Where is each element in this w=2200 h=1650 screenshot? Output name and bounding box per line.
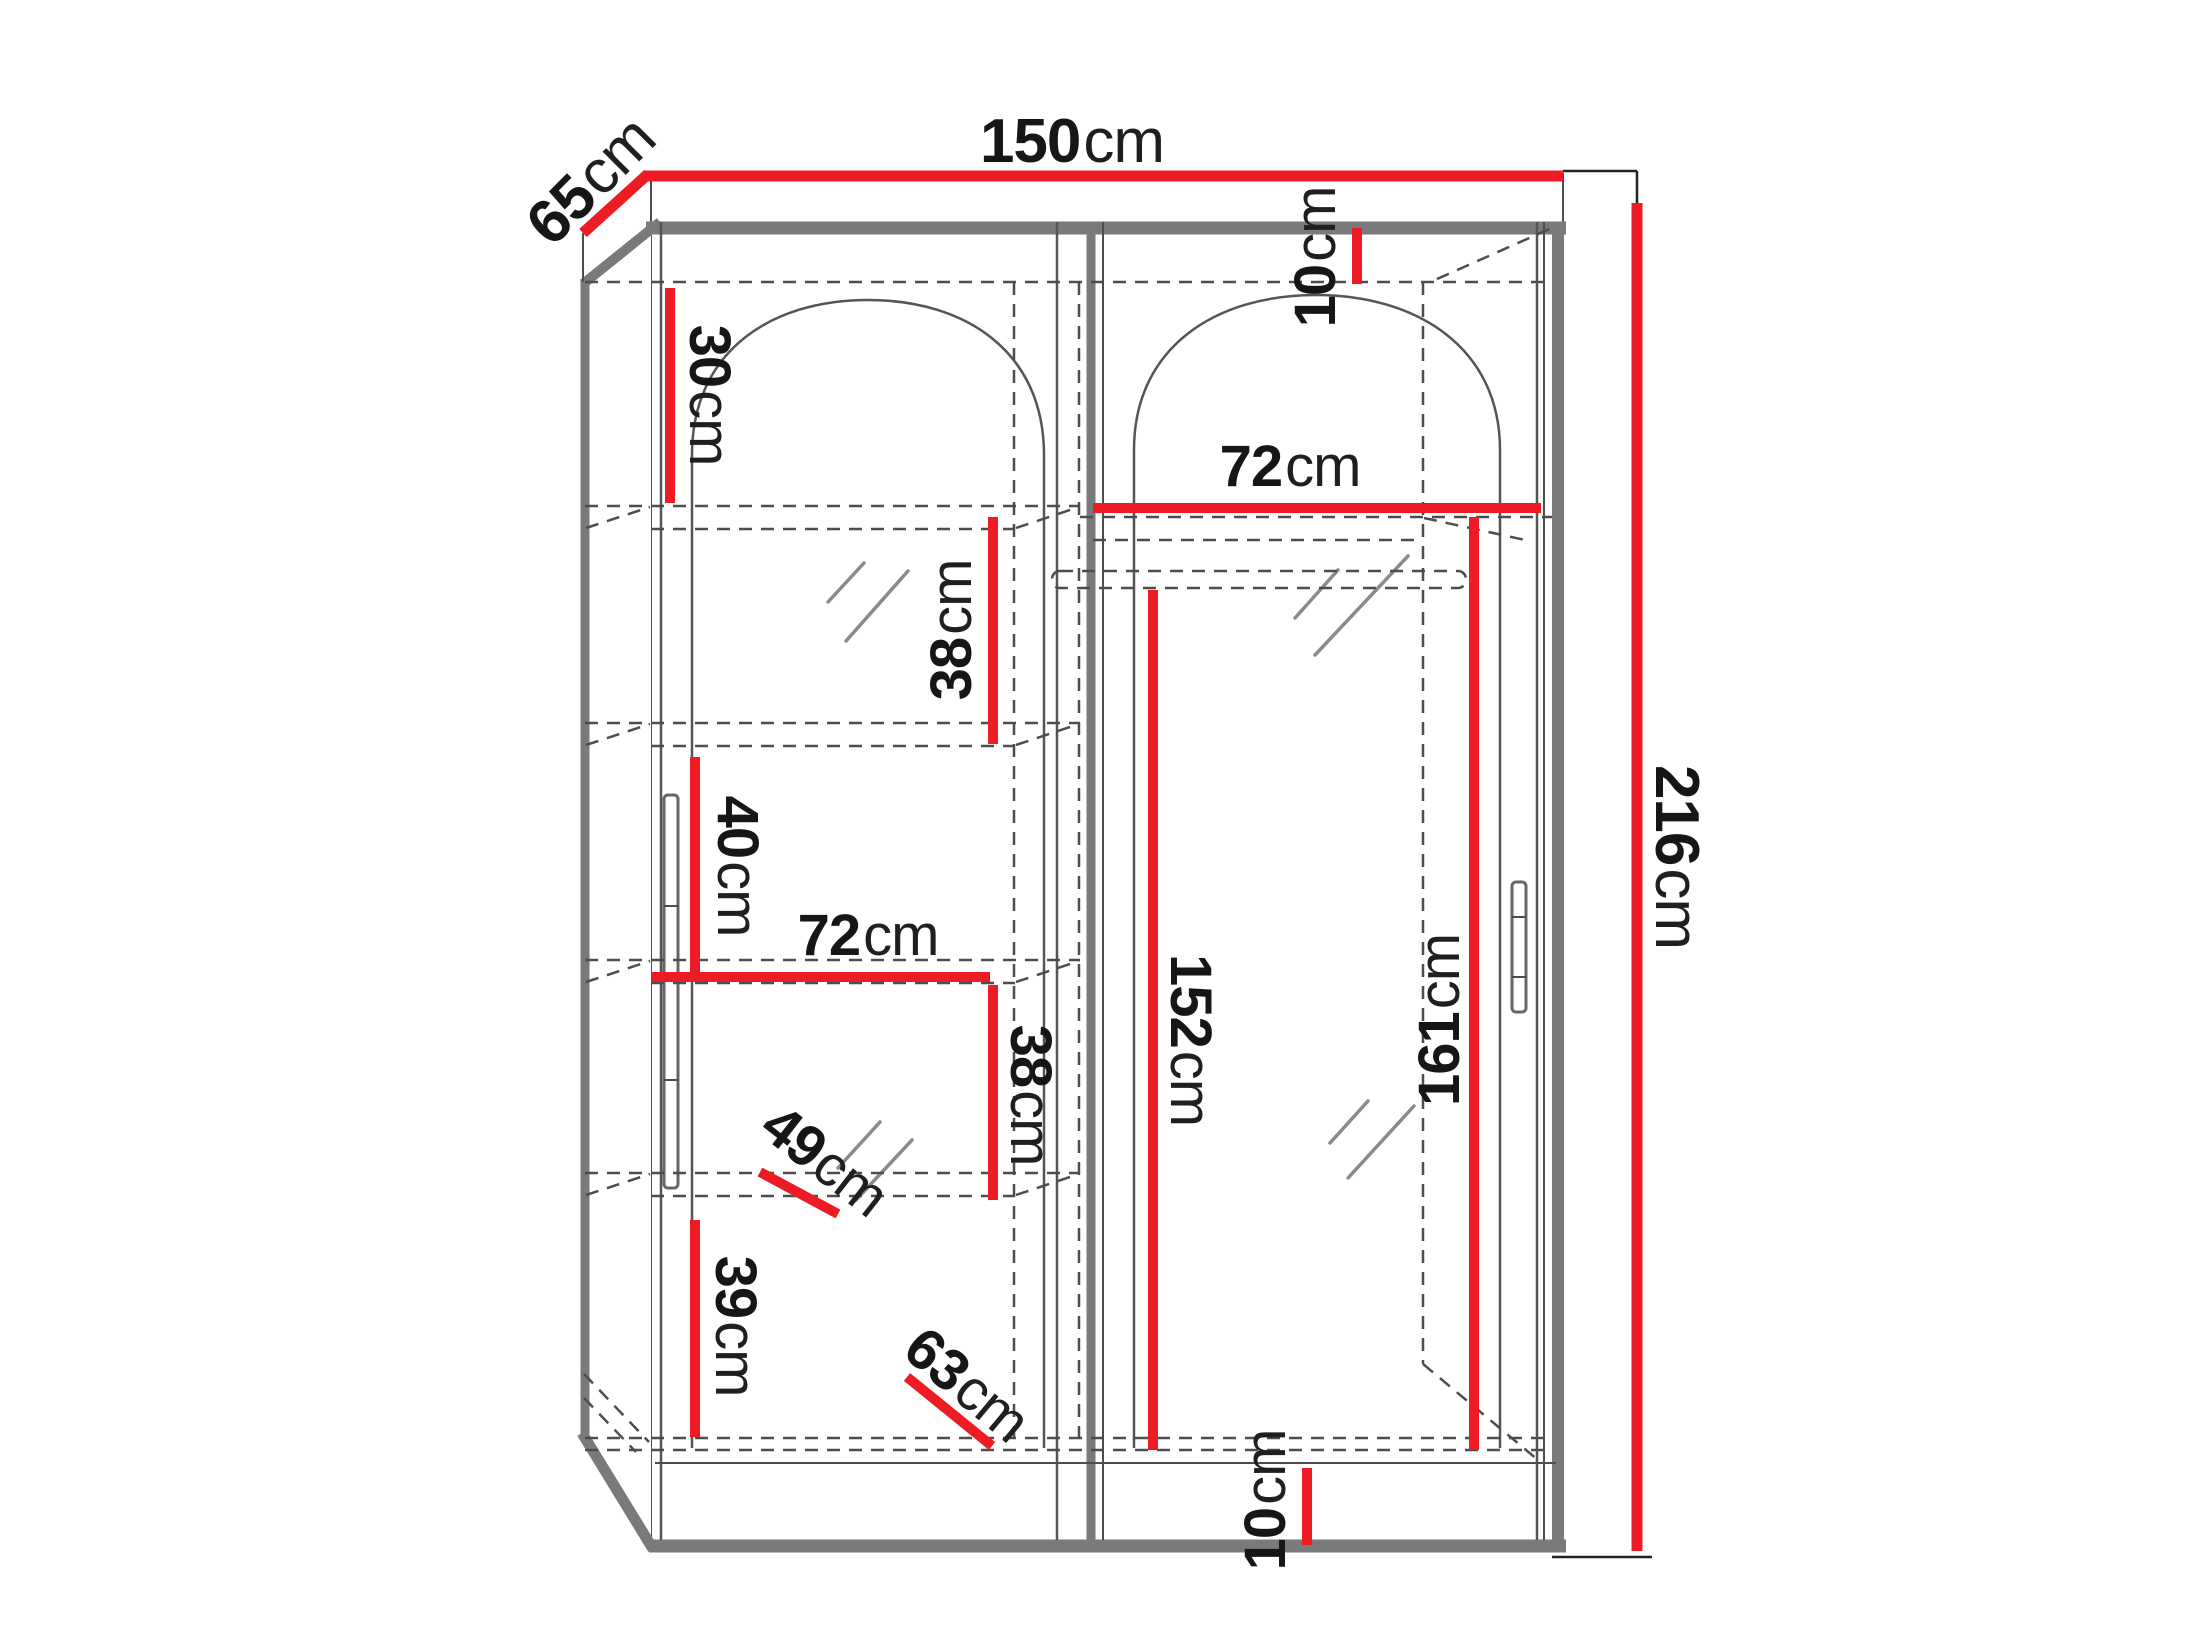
dim-label-height: 216cm	[1642, 765, 1711, 949]
dim-label-38-upper: 38cm	[919, 560, 984, 701]
dim-label-40: 40cm	[705, 796, 770, 937]
dim-label-38-lower: 38cm	[998, 1025, 1063, 1166]
dim-label-161: 161cm	[1407, 934, 1472, 1106]
dim-label-152: 152cm	[1158, 954, 1223, 1126]
dim-label-width: 150cm	[980, 107, 1164, 176]
cabinet-top-band	[651, 176, 1563, 222]
dim-label-30: 30cm	[677, 325, 742, 466]
left-door-handle	[664, 795, 678, 1188]
dim-label-39: 39cm	[703, 1256, 768, 1397]
dim-label-left-shelf-72: 72cm	[798, 903, 939, 968]
dim-label-top-gap: 10cm	[1283, 187, 1348, 328]
wardrobe-dimension-diagram: 150cm 65cm 216cm 10cm 30cm 72cm 38cm 40c…	[0, 0, 2200, 1650]
dim-label-base-10: 10cm	[1233, 1430, 1298, 1571]
cabinet-left-side-panel	[585, 222, 651, 1546]
right-door-handle	[1512, 882, 1526, 1012]
dim-label-right-shelf-72: 72cm	[1220, 434, 1361, 499]
diagram-canvas: 150cm 65cm 216cm 10cm 30cm 72cm 38cm 40c…	[0, 0, 2200, 1650]
